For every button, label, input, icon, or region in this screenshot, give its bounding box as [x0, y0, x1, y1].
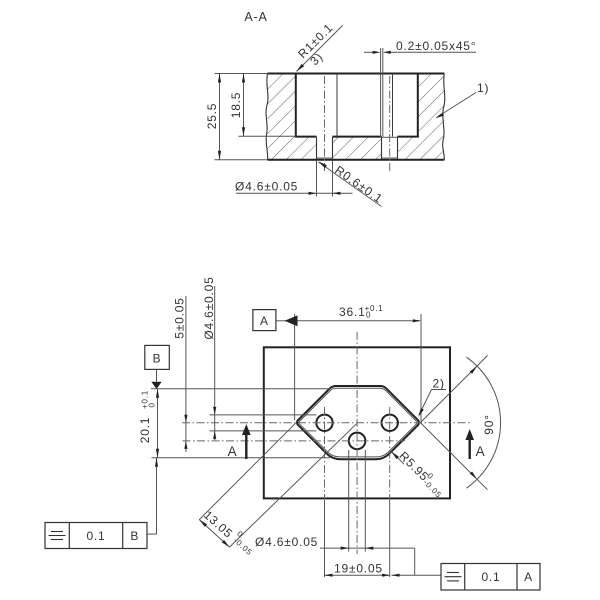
- svg-text:Ø4.6±0.05: Ø4.6±0.05: [202, 276, 216, 339]
- svg-text:Ø4.6±0.05: Ø4.6±0.05: [255, 535, 318, 549]
- svg-text:2): 2): [433, 377, 445, 391]
- svg-text:20.1: 20.1: [138, 417, 152, 444]
- svg-text:1): 1): [477, 81, 489, 95]
- svg-text:A-A: A-A: [244, 10, 267, 24]
- svg-text:A: A: [260, 314, 269, 328]
- svg-text:Ø4.6±0.05: Ø4.6±0.05: [235, 180, 298, 194]
- svg-text:5±0.05: 5±0.05: [173, 297, 187, 338]
- svg-text:B: B: [153, 352, 162, 366]
- svg-text:0: 0: [366, 311, 371, 320]
- svg-text:18.5: 18.5: [229, 92, 243, 119]
- svg-text:A: A: [524, 570, 533, 584]
- svg-text:90°: 90°: [482, 414, 496, 435]
- svg-text:0.2±0.05x45°: 0.2±0.05x45°: [396, 39, 476, 53]
- svg-text:-0.05: -0.05: [421, 478, 443, 500]
- svg-text:B: B: [130, 529, 139, 543]
- svg-text:0.1: 0.1: [481, 570, 500, 584]
- svg-text:A: A: [228, 444, 238, 459]
- svg-text:A: A: [476, 444, 486, 459]
- svg-text:36.1: 36.1: [339, 305, 366, 319]
- svg-text:0.1: 0.1: [86, 529, 105, 543]
- svg-text:19±0.05: 19±0.05: [334, 562, 383, 576]
- svg-text:-0.05: -0.05: [232, 536, 255, 558]
- svg-text:0: 0: [148, 402, 157, 407]
- svg-text:25.5: 25.5: [205, 103, 219, 130]
- svg-text:R0.6±0.1: R0.6±0.1: [332, 163, 385, 206]
